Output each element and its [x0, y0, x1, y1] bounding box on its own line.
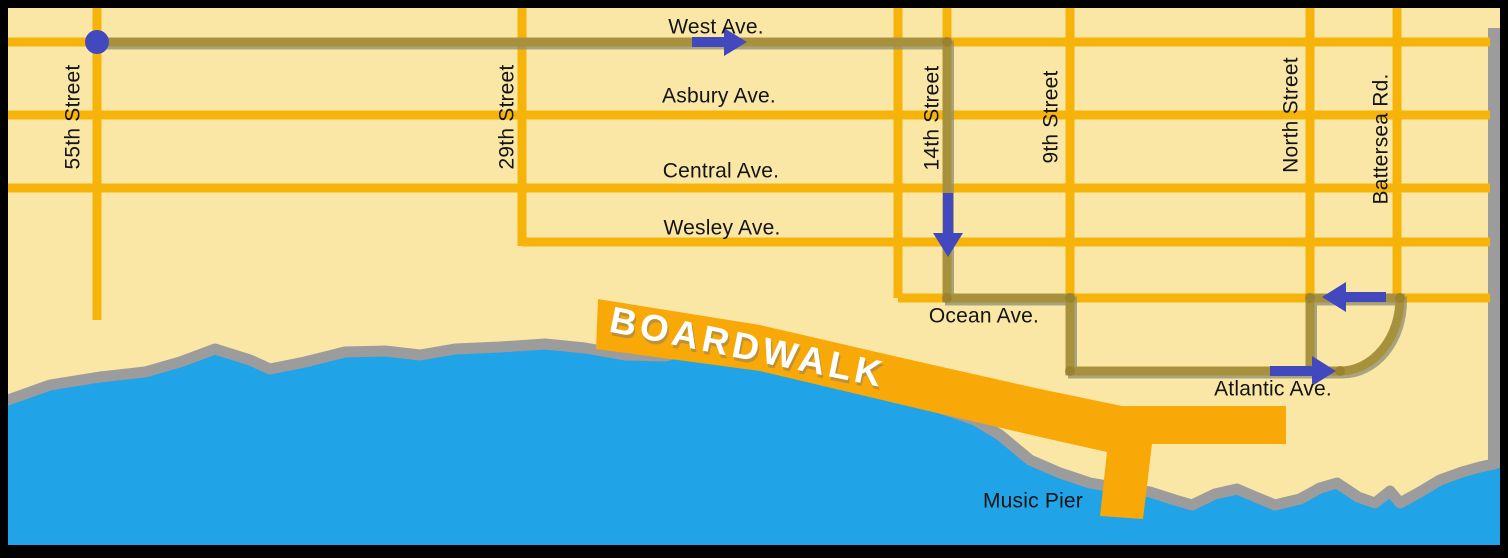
map-canvas: West Ave. Asbury Ave. Central Ave. Wesle…: [0, 0, 1508, 558]
west-ave-label: West Ave.: [668, 17, 764, 38]
shoreline-right-edge: [1488, 28, 1501, 468]
ocean-ave-label: Ocean Ave.: [929, 306, 1039, 327]
street-9-label: 9th Street: [1041, 70, 1062, 163]
street-55-label: 55th Street: [63, 65, 84, 170]
route-start-dot: [85, 30, 109, 54]
music-pier-label: Music Pier: [983, 491, 1083, 512]
battersea-rd-label: Battersea Rd.: [1371, 74, 1392, 205]
street-29-label: 29th Street: [497, 65, 518, 170]
atlantic-ave-label: Atlantic Ave.: [1214, 379, 1332, 400]
street-14-label: 14th Street: [922, 66, 943, 171]
wesley-ave-label: Wesley Ave.: [664, 218, 781, 239]
central-ave-label: Central Ave.: [663, 161, 779, 182]
north-street-label: North Street: [1281, 57, 1302, 173]
asbury-ave-label: Asbury Ave.: [662, 86, 776, 107]
